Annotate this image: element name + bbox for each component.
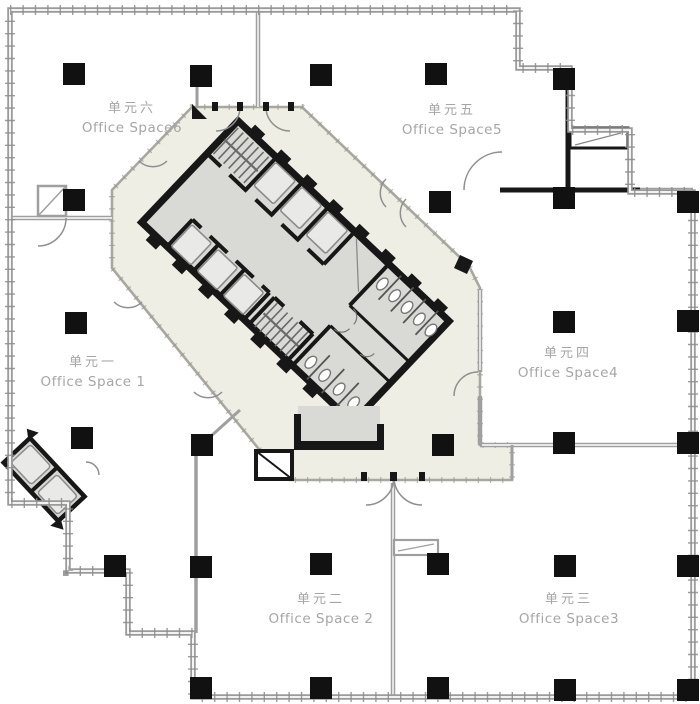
column — [677, 191, 699, 213]
column — [553, 68, 575, 90]
column — [677, 679, 699, 701]
column — [190, 556, 212, 578]
ac-duct-box — [394, 540, 438, 555]
column — [429, 191, 451, 213]
column — [427, 553, 449, 575]
column — [677, 555, 699, 577]
corner-room-sw — [256, 451, 292, 479]
floor-plan-drawing — [0, 0, 700, 704]
column — [677, 310, 699, 332]
column — [310, 64, 332, 86]
column — [190, 65, 212, 87]
column — [65, 312, 87, 334]
column — [554, 679, 576, 701]
utility-room-left — [38, 186, 66, 216]
column — [425, 63, 447, 85]
column — [71, 427, 93, 449]
column — [310, 553, 332, 575]
column — [553, 432, 575, 454]
column — [310, 677, 332, 699]
column — [677, 432, 699, 454]
column — [553, 311, 575, 333]
column — [63, 63, 85, 85]
column — [554, 555, 576, 577]
column — [427, 677, 449, 699]
column — [432, 434, 454, 456]
column — [63, 189, 85, 211]
column — [191, 434, 213, 456]
core-south-extension — [294, 406, 384, 450]
column — [104, 555, 126, 577]
floor-plan-canvas: 单元六Office Space6单元五Office Space5单元一Offic… — [0, 0, 700, 704]
column — [553, 187, 575, 209]
column — [190, 677, 212, 699]
